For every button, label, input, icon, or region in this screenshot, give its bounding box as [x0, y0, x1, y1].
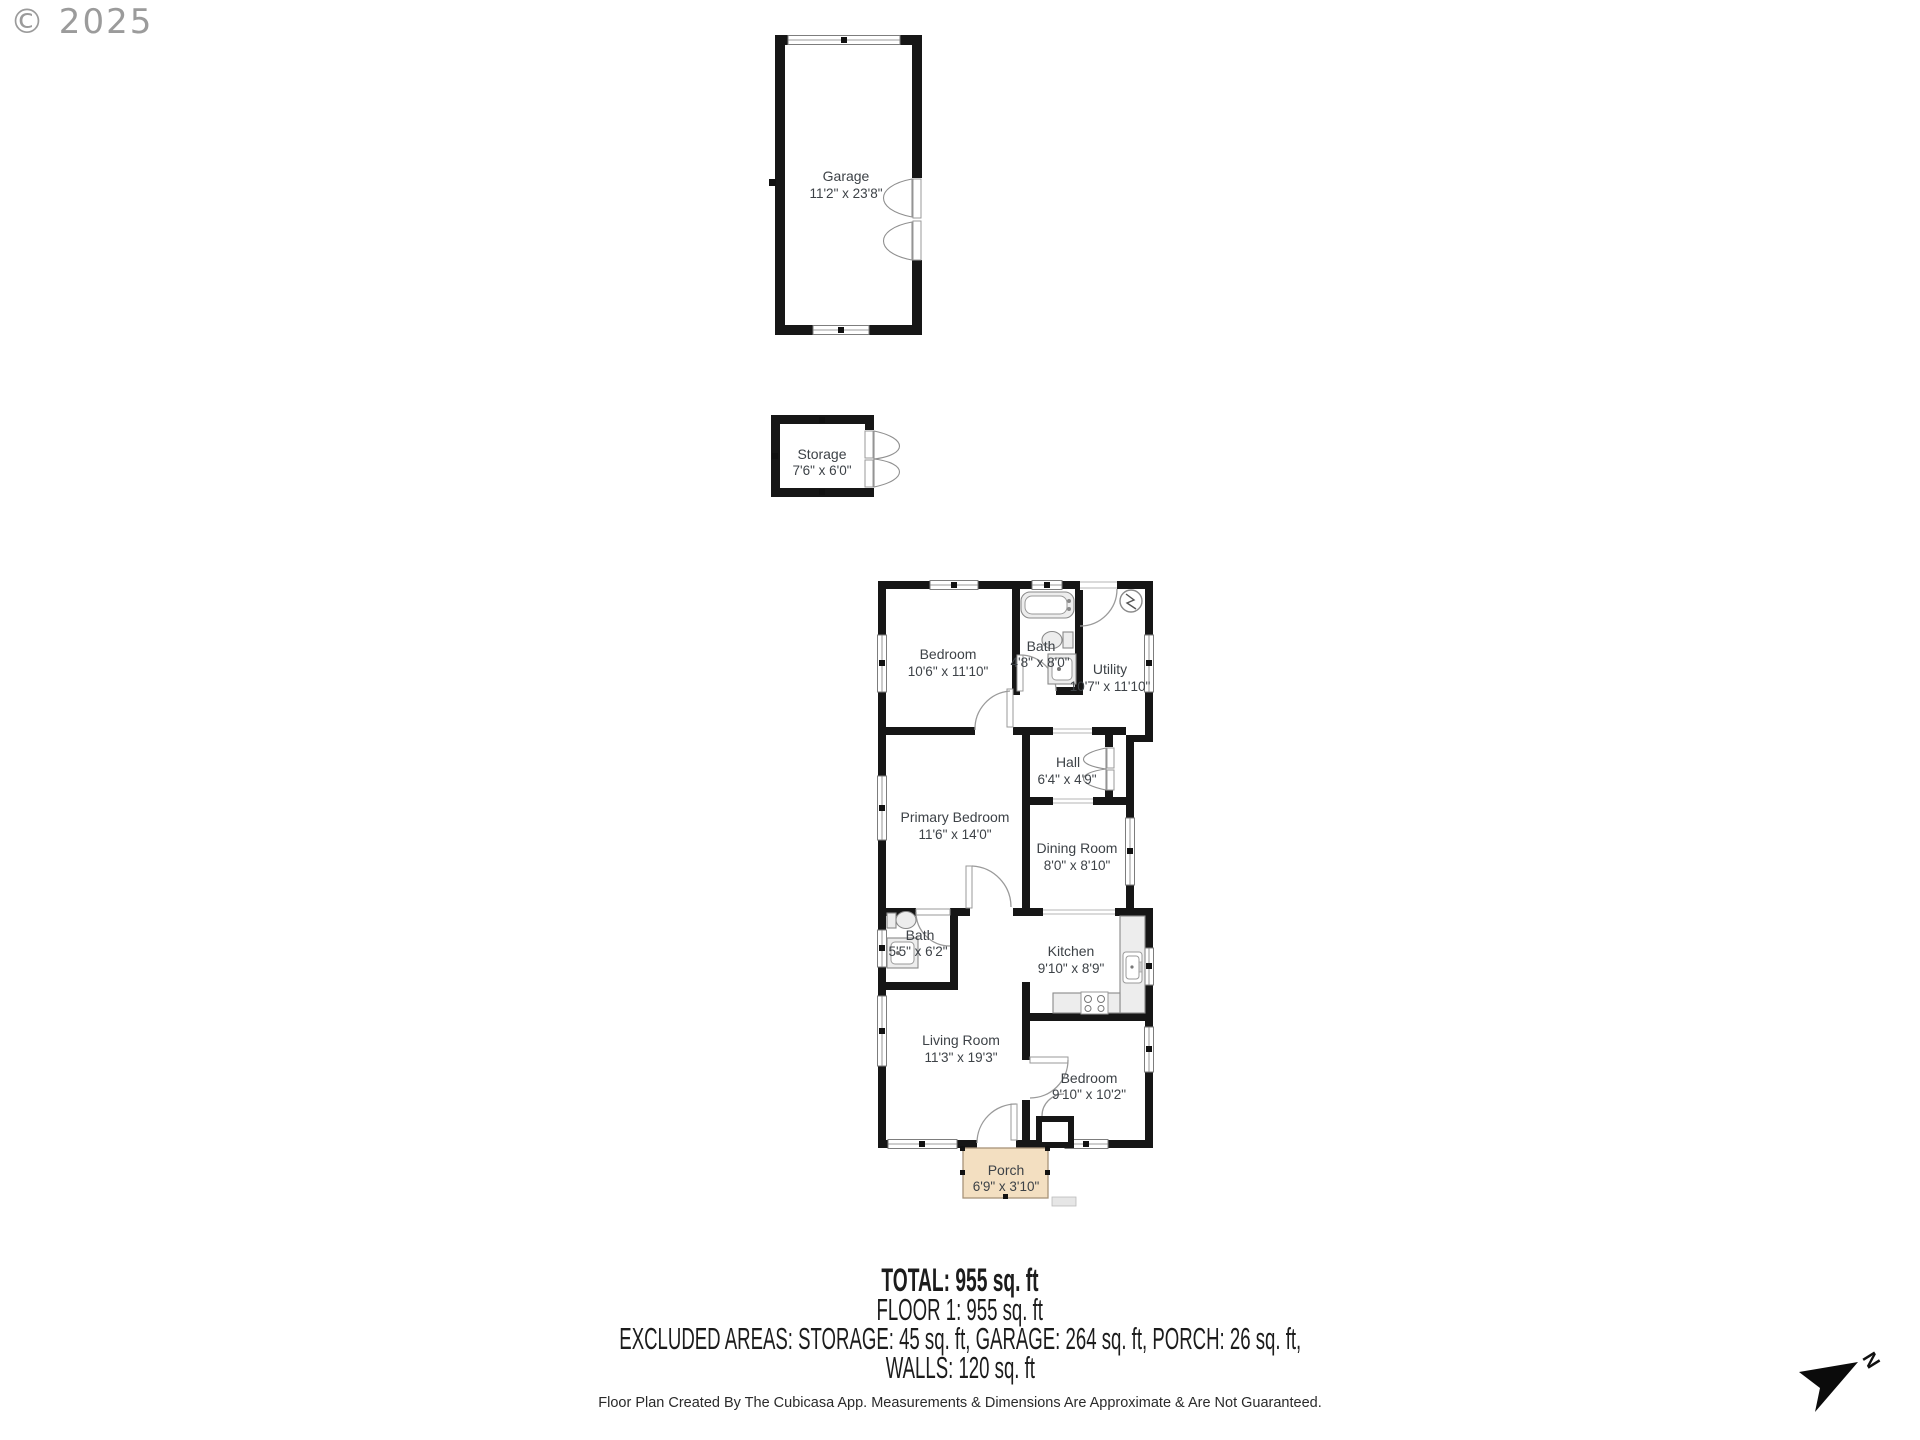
primary-bedroom-label: Primary Bedroom: [901, 809, 1010, 825]
garage-label: Garage: [823, 168, 870, 184]
utility-label: Utility: [1093, 661, 1127, 677]
hall-opening-top: [1053, 727, 1092, 735]
bath-lower-dims: 5'5" x 6'2": [888, 944, 947, 959]
stove-icon: [1081, 992, 1108, 1014]
garage-window-bottom-icon: [813, 326, 869, 335]
kitchen-label: Kitchen: [1048, 943, 1095, 959]
bathtub-icon: [1021, 592, 1074, 618]
bedroom-lower-dims: 9'10" x 10'2": [1052, 1087, 1126, 1102]
porch-step: [1052, 1197, 1076, 1206]
bath-top-dims: 4'8" x 8'0": [1010, 655, 1069, 670]
porch-label: Porch: [988, 1162, 1025, 1178]
floor-plan-page: © 2025: [0, 0, 1920, 1440]
floor1-area-line: FLOOR 1: 955 sq. ft: [0, 1295, 1920, 1324]
bedroom-lower-label: Bedroom: [1061, 1070, 1118, 1086]
area-summary: TOTAL: 955 sq. ft FLOOR 1: 955 sq. ft EX…: [0, 1266, 1920, 1382]
bedroom-top-label: Bedroom: [920, 646, 977, 662]
garage-room: Garage 11'2" x 23'8": [769, 35, 922, 335]
garage-dims: 11'2" x 23'8": [809, 186, 882, 201]
toilet-lower-icon: [887, 912, 916, 929]
hall-label: Hall: [1056, 754, 1080, 770]
storage-label: Storage: [797, 446, 846, 462]
garage-wall-tick: [769, 179, 776, 186]
living-room-dims: 11'3" x 19'3": [924, 1050, 997, 1065]
living-room-label: Living Room: [922, 1032, 1000, 1048]
primary-bedroom-dims: 11'6" x 14'0": [918, 827, 991, 842]
hall-dims: 6'4" x 4'9": [1037, 772, 1096, 787]
kitchen-dims: 9'10" x 8'9": [1038, 961, 1105, 976]
bedroom-top-dims: 10'6" x 11'10": [908, 664, 989, 679]
dining-opening-top: [1053, 797, 1093, 805]
porch-dims: 6'9" x 3'10": [973, 1179, 1040, 1194]
storage-door-icon: [864, 430, 900, 488]
dining-room-label: Dining Room: [1037, 840, 1118, 856]
main-house: Bedroom 10'6" x 11'10" Bath 4'8" x 8'0" …: [878, 580, 1154, 1149]
floor-plan-canvas: Garage 11'2" x 23'8" Storage 7'6" x 6'0": [0, 0, 1920, 1440]
kitchen-opening: [1043, 908, 1115, 916]
storage-room: Storage 7'6" x 6'0": [771, 415, 900, 497]
garage-window-top-icon: [788, 36, 900, 45]
bath-lower-label: Bath: [906, 927, 935, 943]
excluded-areas-line: EXCLUDED AREAS: STORAGE: 45 sq. ft, GARA…: [0, 1324, 1920, 1353]
dining-room-dims: 8'0" x 8'10": [1044, 858, 1111, 873]
kitchen-sink-icon: [1123, 952, 1142, 983]
disclaimer-footer: Floor Plan Created By The Cubicasa App. …: [0, 1395, 1920, 1411]
storage-dims: 7'6" x 6'0": [792, 463, 851, 478]
water-heater-icon: [1120, 590, 1142, 612]
walls-area-line: WALLS: 120 sq. ft: [0, 1353, 1920, 1382]
porch-area: Porch 6'9" x 3'10": [960, 1146, 1076, 1206]
bath-top-label: Bath: [1027, 638, 1056, 654]
total-area-line: TOTAL: 955 sq. ft: [0, 1266, 1920, 1295]
utility-dims: 10'7" x 11'10": [1070, 679, 1151, 694]
